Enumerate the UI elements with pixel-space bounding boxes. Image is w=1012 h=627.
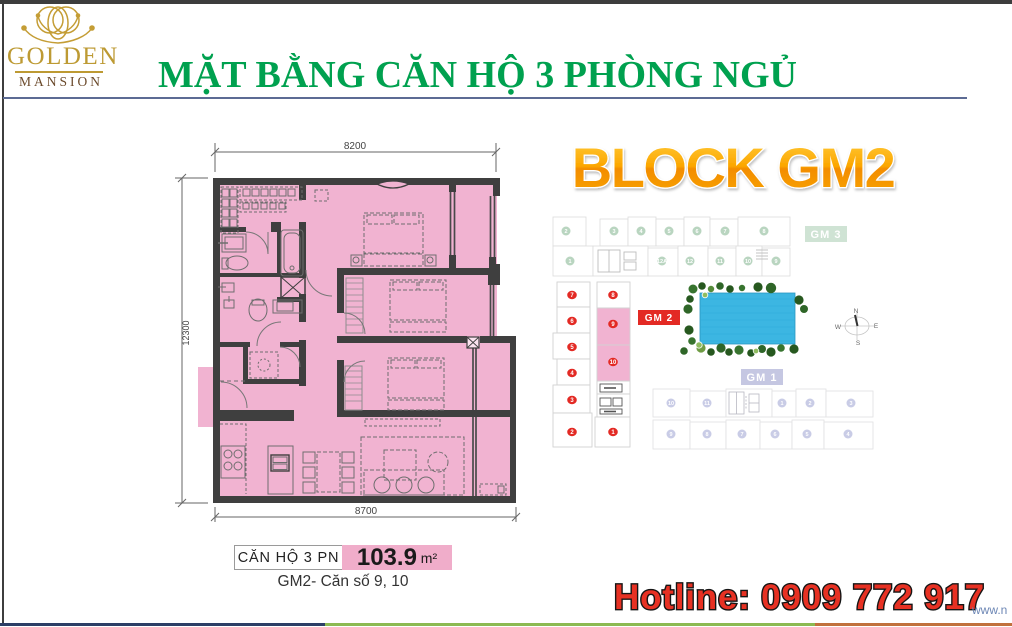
svg-text:10: 10 — [610, 360, 617, 366]
svg-text:11: 11 — [717, 259, 723, 265]
svg-text:11: 11 — [704, 401, 710, 407]
svg-text:8: 8 — [762, 229, 765, 235]
svg-text:10: 10 — [745, 259, 751, 265]
svg-text:8200: 8200 — [344, 141, 367, 152]
svg-text:BLOCK GM2: BLOCK GM2 — [572, 136, 895, 199]
svg-text:GM 2: GM 2 — [645, 313, 673, 324]
svg-text:7: 7 — [723, 229, 726, 235]
svg-text:2: 2 — [564, 229, 567, 235]
svg-text:2: 2 — [808, 401, 811, 407]
svg-text:E: E — [874, 323, 879, 330]
svg-text:S: S — [856, 340, 861, 347]
svg-text:5: 5 — [667, 229, 670, 235]
svg-text:12: 12 — [687, 259, 693, 265]
svg-text:8: 8 — [705, 432, 708, 438]
svg-text:5: 5 — [805, 432, 808, 438]
svg-text:N: N — [854, 308, 859, 315]
svg-text:1: 1 — [568, 259, 571, 265]
svg-text:10: 10 — [668, 401, 674, 407]
svg-text:6: 6 — [773, 432, 776, 438]
svg-text:12A: 12A — [657, 259, 667, 265]
svg-text:6: 6 — [695, 229, 698, 235]
svg-text:1: 1 — [780, 401, 783, 407]
svg-text:3: 3 — [849, 401, 852, 407]
svg-text:9: 9 — [774, 259, 777, 265]
svg-text:GM 1: GM 1 — [747, 372, 778, 384]
svg-text:GM 3: GM 3 — [811, 229, 842, 241]
svg-text:12300: 12300 — [181, 320, 191, 345]
svg-text:W: W — [835, 324, 842, 331]
svg-text:8700: 8700 — [355, 506, 378, 517]
svg-text:9: 9 — [669, 432, 672, 438]
svg-text:3: 3 — [612, 229, 615, 235]
svg-text:7: 7 — [740, 432, 743, 438]
